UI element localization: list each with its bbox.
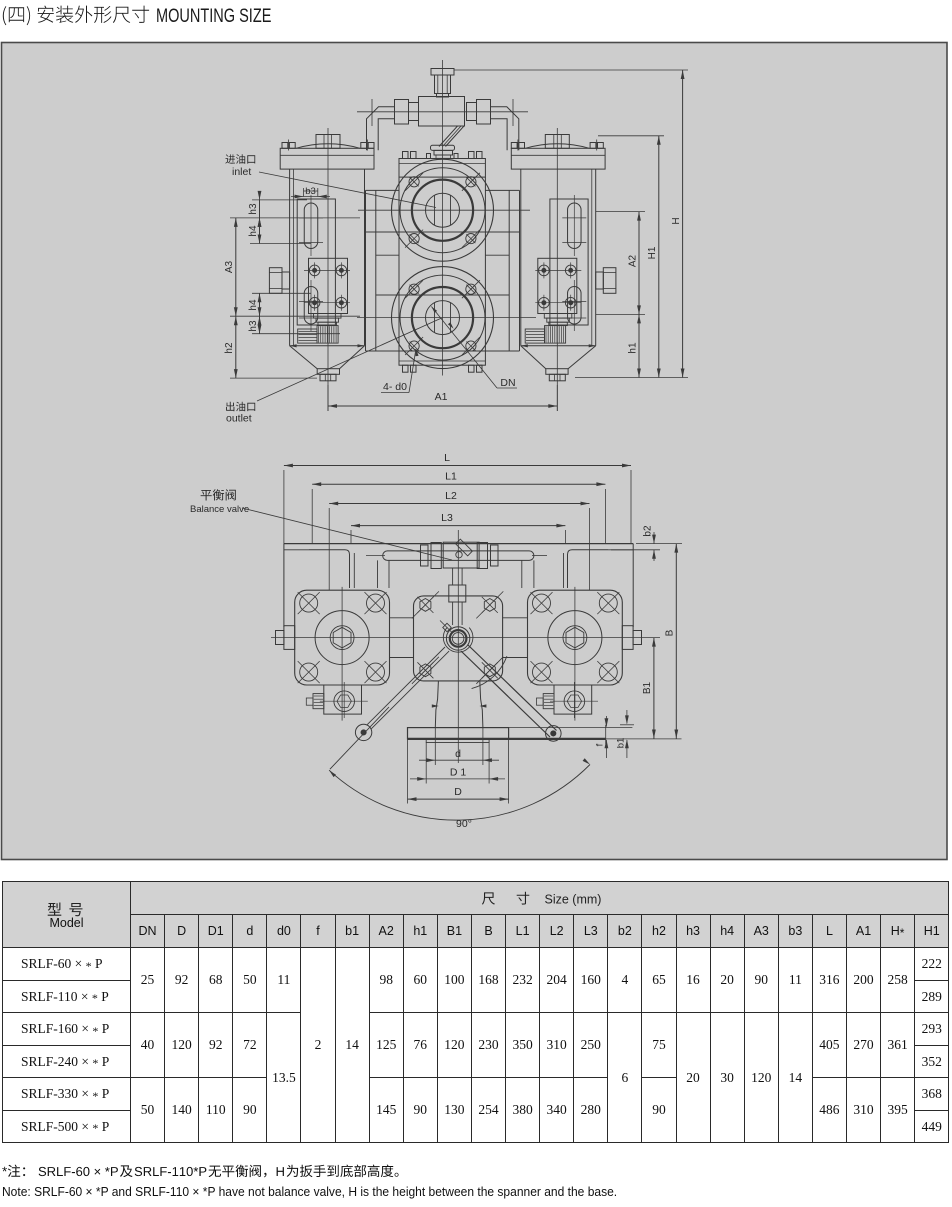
svg-text:Balance valve: Balance valve — [190, 504, 249, 515]
svg-text:f: f — [595, 743, 606, 746]
svg-text:4- d0: 4- d0 — [383, 381, 407, 393]
svg-text:outlet: outlet — [226, 413, 252, 425]
svg-text:L3: L3 — [441, 512, 453, 524]
svg-text:L2: L2 — [445, 490, 457, 502]
svg-text:h4: h4 — [248, 299, 259, 311]
svg-text:DN: DN — [500, 377, 515, 389]
svg-text:h2: h2 — [224, 342, 235, 354]
svg-text:inlet: inlet — [232, 166, 251, 178]
svg-text:h3: h3 — [248, 320, 259, 332]
svg-text:Size (mm): Size (mm) — [545, 893, 602, 907]
svg-text:B: B — [665, 629, 676, 636]
svg-text:L: L — [444, 452, 450, 464]
svg-text:D 1: D 1 — [450, 767, 467, 779]
svg-text:B1: B1 — [642, 681, 653, 694]
svg-text:b1: b1 — [616, 738, 627, 749]
svg-text:H: H — [671, 217, 682, 224]
svg-text:h4: h4 — [248, 225, 259, 237]
svg-text:A2: A2 — [628, 254, 639, 267]
svg-text:h3: h3 — [248, 203, 259, 215]
svg-text:D: D — [454, 786, 462, 798]
svg-text:A1: A1 — [435, 391, 448, 403]
svg-text:A3: A3 — [224, 260, 235, 273]
svg-text:L1: L1 — [445, 471, 457, 483]
svg-text:h1: h1 — [628, 342, 639, 354]
svg-text:b3: b3 — [305, 186, 316, 197]
svg-text:90°: 90° — [456, 818, 472, 830]
svg-text:b2: b2 — [643, 525, 654, 537]
svg-text:H1: H1 — [647, 246, 658, 259]
svg-text:d: d — [455, 748, 461, 760]
